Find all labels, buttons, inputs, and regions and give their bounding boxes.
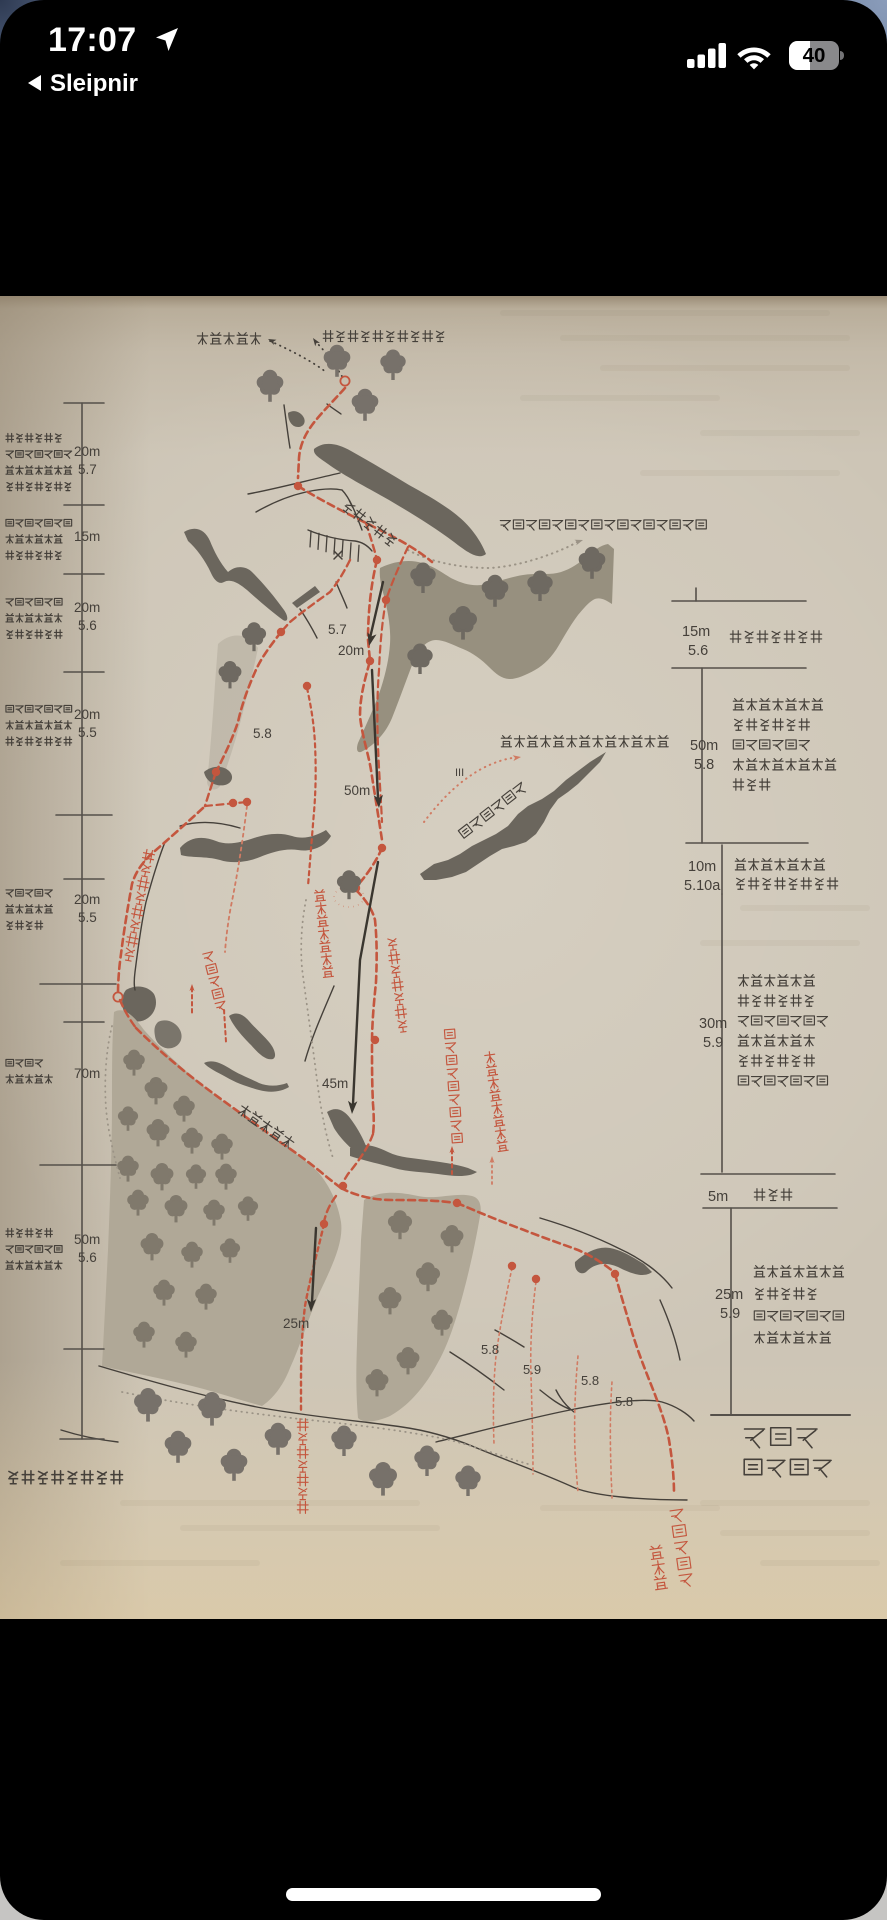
svg-text:50m: 50m [690,738,718,754]
svg-text:25m: 25m [715,1287,743,1303]
svg-text:45m: 45m [322,1076,348,1091]
svg-text:5.7: 5.7 [78,462,97,477]
svg-text:5.8: 5.8 [253,726,272,741]
svg-text:20m: 20m [338,643,364,658]
svg-text:20m: 20m [74,444,100,459]
svg-text:5.8: 5.8 [481,1342,499,1357]
svg-text:5.8: 5.8 [694,757,714,773]
svg-text:5.10a: 5.10a [684,878,721,894]
svg-text:5.7: 5.7 [328,622,347,637]
svg-text:5.6: 5.6 [78,618,97,633]
svg-text:5.9: 5.9 [703,1035,723,1051]
svg-text:50m: 50m [344,783,370,798]
svg-text:5.5: 5.5 [78,910,97,925]
svg-text:50m: 50m [74,1232,100,1247]
svg-text:15m: 15m [682,624,710,640]
svg-text:30m: 30m [699,1016,727,1032]
svg-text:20m: 20m [74,707,100,722]
svg-text:III: III [455,767,464,779]
svg-text:20m: 20m [74,892,100,907]
svg-text:5.8: 5.8 [581,1373,599,1388]
svg-text:25m: 25m [283,1316,309,1331]
svg-text:5.5: 5.5 [78,725,97,740]
svg-text:5.6: 5.6 [78,1250,97,1265]
svg-text:5.8: 5.8 [615,1394,633,1409]
svg-text:20m: 20m [74,600,100,615]
svg-text:5.9: 5.9 [720,1306,740,1322]
svg-text:5.6: 5.6 [688,643,708,659]
svg-text:10m: 10m [688,859,716,875]
svg-text:15m: 15m [74,529,100,544]
svg-text:5.9: 5.9 [523,1362,541,1377]
svg-text:5m: 5m [708,1189,728,1205]
svg-text:70m: 70m [74,1066,100,1081]
